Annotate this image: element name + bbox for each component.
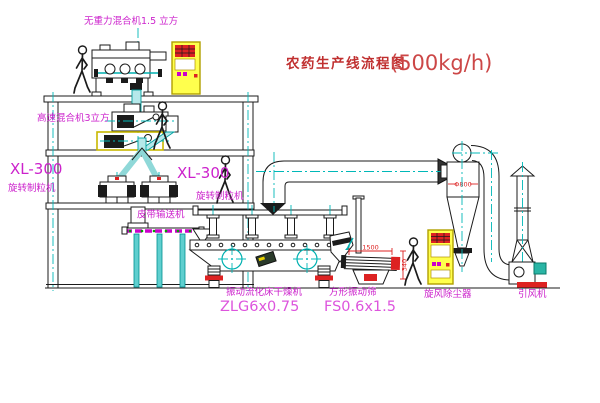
high-speed-mixer [97, 104, 178, 150]
screen-model: FS0.6x1.5 [324, 299, 396, 315]
dryer-label: 振动流化床干燥机 [226, 286, 303, 298]
screen-label: 方形振动筛 [329, 286, 377, 298]
screen-length-dim: 1500 [362, 244, 379, 252]
granulator-left-model: XL-300 [10, 160, 62, 178]
page-title: 农药生产线流程图 [285, 55, 406, 72]
vibrating-screen: 1500 340 [330, 232, 409, 284]
page-title-capacity: (500kg/h) [390, 51, 492, 75]
granulator-right-label: 旋转制粒机 [196, 190, 244, 202]
drive-motor [104, 135, 124, 148]
fan-base [517, 282, 547, 288]
dryer-model: ZLG6x0.75 [220, 299, 299, 315]
mixer-motor [117, 115, 134, 128]
granulator-right-model: XL-300 [177, 164, 229, 182]
induced-draft-fan [509, 262, 547, 288]
high-speed-mixer-label: 高速混合机3立方 [37, 112, 110, 124]
control-cabinet-lower [428, 230, 453, 284]
granulator-left-label: 旋转制粒机 [8, 182, 56, 194]
granulator-left [98, 172, 136, 203]
cyclone-label: 旋风除尘器 [424, 288, 472, 300]
fan-motor [534, 263, 546, 274]
process-flow-diagram: Φ800 [0, 0, 600, 403]
cyclone-diameter-dim: Φ800 [454, 181, 472, 189]
gravity-mixer-label: 无重力混合机1.5 立方 [84, 15, 178, 27]
screen-deck [341, 255, 400, 271]
worker-figure [74, 46, 90, 93]
fan-label: 引风机 [518, 288, 547, 300]
cabinet-indicator [177, 72, 181, 76]
spring-foot-right [315, 266, 333, 288]
granulator-right [140, 172, 178, 203]
control-cabinet-upper [172, 42, 200, 94]
belt-conveyor-label: 皮带输送机 [137, 209, 185, 221]
conveyor-leg [134, 234, 139, 287]
belt-conveyor [122, 227, 204, 287]
diagram-canvas: Φ800 [0, 0, 600, 403]
